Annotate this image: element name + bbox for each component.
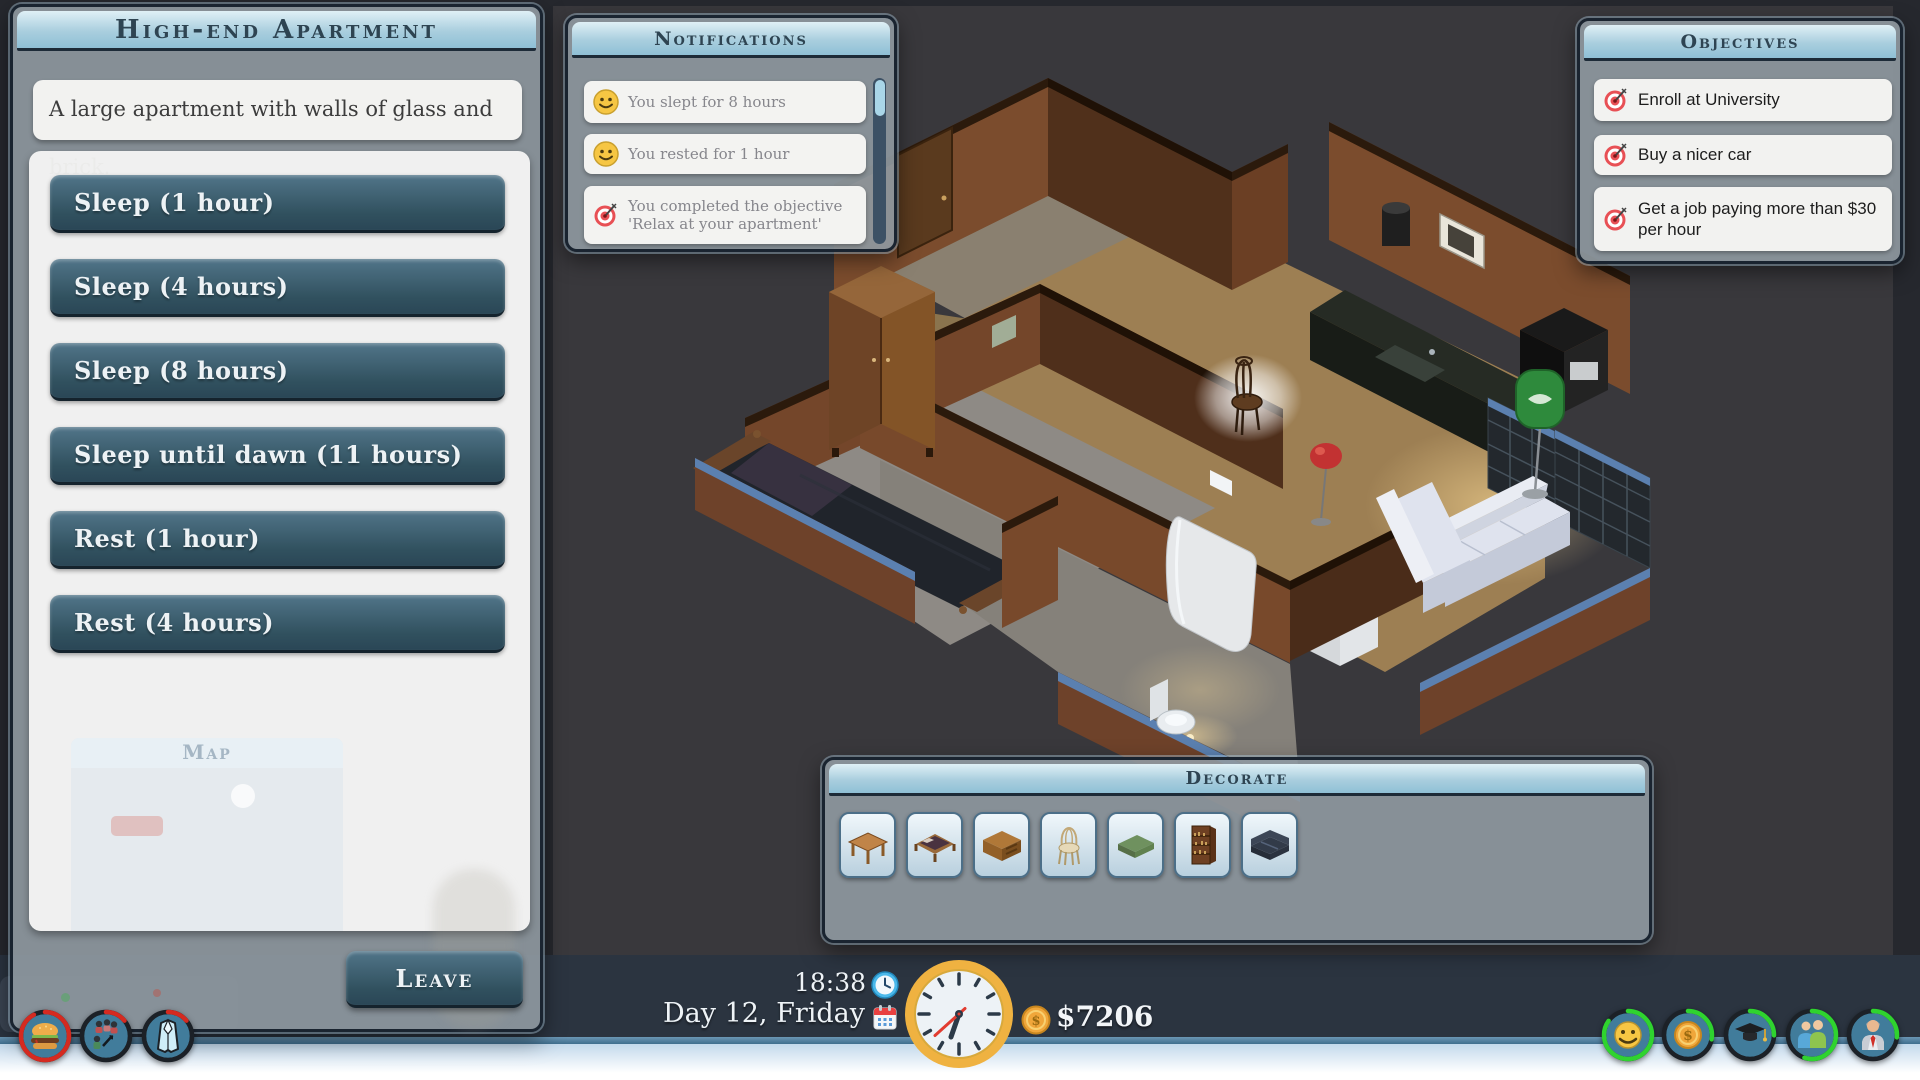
decorate-header: Decorate (829, 764, 1645, 796)
stat-job[interactable] (1846, 1008, 1900, 1062)
rest-4-hours-button[interactable]: Rest (4 hours) (50, 595, 505, 653)
background-map-window: Map (71, 738, 343, 931)
map-green-dot (61, 993, 70, 1002)
svg-text:$: $ (1031, 1014, 1040, 1029)
objective-text: Get a job paying more than $30 per hour (1638, 198, 1892, 241)
smiley-icon (1615, 1022, 1641, 1048)
objective-target-icon (593, 202, 619, 228)
coin-icon: $ (1021, 1005, 1051, 1035)
hud-money: $7206 (1056, 1000, 1153, 1033)
calendar-icon (871, 1003, 899, 1031)
door-knob (942, 196, 947, 201)
notifications-panel: Notifications You slept for 8 hours You … (565, 15, 897, 252)
notifications-scrollbar-thumb[interactable] (875, 80, 885, 116)
notification-text: You rested for 1 hour (628, 145, 795, 163)
coin-icon: $ (1675, 1022, 1701, 1048)
objective-item[interactable]: Buy a nicer car (1594, 135, 1892, 175)
bookcase-icon (1180, 820, 1226, 870)
decorate-item-sofa[interactable] (1241, 812, 1298, 878)
bed-icon (912, 820, 958, 870)
apartment-title: High-end Apartment (17, 11, 536, 51)
trash-bin-lid (1382, 202, 1410, 214)
objective-text: Enroll at University (1638, 89, 1780, 110)
highlighted-chair[interactable] (1194, 354, 1302, 442)
table-icon (845, 820, 891, 870)
sleep-8-hours-button[interactable]: Sleep (8 hours) (50, 343, 505, 401)
stat-style[interactable] (141, 1009, 195, 1063)
smiley-icon (593, 89, 619, 115)
sleep-1-hour-button[interactable]: Sleep (1 hour) (50, 175, 505, 233)
sleep-4-hours-button[interactable]: Sleep (4 hours) (50, 259, 505, 317)
objective-text: Buy a nicer car (1638, 144, 1751, 165)
decorate-item-bed[interactable] (906, 812, 963, 878)
stat-happiness[interactable] (1601, 1008, 1655, 1062)
decorate-item-bookcase[interactable] (1174, 812, 1231, 878)
map-light-ghost (231, 784, 255, 808)
stove-display (1570, 362, 1598, 380)
jacket-icon (158, 1020, 178, 1052)
decorate-item-table[interactable] (839, 812, 896, 878)
objective-item[interactable]: Enroll at University (1594, 79, 1892, 121)
decorate-panel: Decorate (822, 757, 1652, 943)
hud-date: Day 12, Friday (620, 998, 865, 1029)
apartment-description: A large apartment with walls of glass an… (33, 80, 522, 140)
decorate-item-mattress[interactable] (1107, 812, 1164, 878)
notification-text: You slept for 8 hours (628, 93, 792, 111)
objective-target-icon (1603, 87, 1629, 113)
notifications-scrollbar[interactable] (873, 78, 886, 244)
notification-item[interactable]: You completed the objective 'Relax at yo… (584, 186, 866, 244)
hud-time: 18:38 (746, 968, 866, 997)
smiley-icon (593, 141, 619, 167)
faucet (1429, 349, 1435, 355)
burger-icon (31, 1023, 59, 1049)
map-red-dot (153, 989, 161, 997)
stat-friends[interactable] (1785, 1008, 1839, 1062)
sofa-icon (1247, 820, 1293, 870)
decorate-item-desk[interactable] (973, 812, 1030, 878)
notification-item[interactable]: You rested for 1 hour (584, 134, 866, 174)
objectives-header: Objectives (1584, 25, 1896, 61)
notification-text: You completed the objective 'Relax at yo… (628, 197, 866, 233)
desk-icon (979, 820, 1025, 870)
analog-clock (903, 958, 1015, 1070)
objective-item[interactable]: Get a job paying more than $30 per hour (1594, 187, 1892, 251)
stat-education[interactable] (1723, 1008, 1777, 1062)
svg-text:$: $ (1683, 1028, 1693, 1044)
notifications-header: Notifications (572, 22, 890, 58)
actions-container: Sleep (1 hour) Sleep (4 hours) Sleep (8 … (29, 151, 530, 931)
objectives-panel: Objectives Enroll at University Buy a ni… (1577, 18, 1903, 264)
leave-button[interactable]: Leave (346, 951, 523, 1008)
background-map-title: Map (71, 738, 343, 768)
notification-item[interactable]: You slept for 8 hours (584, 81, 866, 123)
decorate-item-chair[interactable] (1040, 812, 1097, 878)
sleep-until-dawn-button[interactable]: Sleep until dawn (11 hours) (50, 427, 505, 485)
stat-social[interactable] (79, 1009, 133, 1063)
map-car-ghost (111, 816, 163, 836)
rest-1-hour-button[interactable]: Rest (1 hour) (50, 511, 505, 569)
objective-target-icon (1603, 206, 1629, 232)
chair-icon (1046, 820, 1092, 870)
mattress-icon (1113, 820, 1159, 870)
apartment-panel: High-end Apartment A large apartment wit… (10, 4, 543, 1032)
stat-money[interactable]: $ (1661, 1008, 1715, 1062)
objective-target-icon (1603, 142, 1629, 168)
stat-hunger[interactable] (18, 1009, 72, 1063)
clock-small-icon (871, 971, 899, 999)
decorate-items-row (839, 812, 1298, 878)
